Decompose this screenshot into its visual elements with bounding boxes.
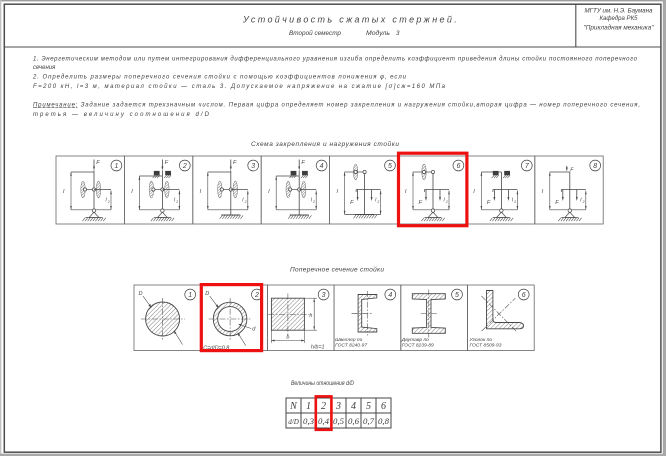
svg-text:3: 3 [251,163,255,170]
svg-text:Швеллер по: Швеллер по [335,337,363,343]
svg-text:0,7: 0,7 [363,416,375,426]
svg-text:N: N [289,401,298,412]
svg-text:2: 2 [445,200,448,204]
svg-text:ГОСТ 8240-97: ГОСТ 8240-97 [335,343,367,349]
svg-text:0,5: 0,5 [333,416,345,426]
svg-text:2. Определить размеры попер: 2. Определить размеры поперечного сечени… [32,74,407,81]
svg-text:Кафедра РК5: Кафедра РК5 [600,14,638,22]
svg-text:Модуль: Модуль [366,30,390,37]
svg-text:F: F [96,160,100,166]
svg-text:2: 2 [376,200,379,204]
svg-text:h: h [309,313,312,319]
svg-text:2: 2 [107,200,110,204]
svg-text:0,8: 0,8 [378,416,390,426]
svg-text:F: F [233,160,237,166]
svg-text:b: b [286,335,289,341]
svg-text:2: 2 [312,200,315,204]
svg-text:"Прикладная механика": "Прикладная механика" [584,24,655,32]
svg-text:Второй семестр: Второй семестр [289,30,342,37]
svg-text:F: F [301,160,305,166]
svg-text:0,3: 0,3 [303,416,315,426]
svg-text:сечения: сечения [33,65,56,71]
svg-text:2: 2 [182,163,187,170]
svg-text:F: F [165,160,169,166]
svg-text:5: 5 [455,292,459,299]
svg-text:1: 1 [188,292,192,299]
svg-text:1: 1 [114,163,118,170]
svg-text:3: 3 [396,30,400,37]
svg-text:5: 5 [388,163,392,170]
svg-text:4: 4 [351,401,356,412]
svg-text:6: 6 [522,292,526,299]
svg-text:4: 4 [320,163,324,170]
svg-text:3: 3 [335,401,341,412]
svg-text:2: 2 [582,200,585,204]
svg-text:2: 2 [175,200,178,204]
svg-text:1. Энергетическим методом и: 1. Энергетическим методом или путем инте… [33,55,638,62]
svg-text:Схема закрепления и нагруже: Схема закрепления и нагружения стойки [251,140,399,148]
svg-text:МГТУ им. Н.Э. Баумана: МГТУ им. Н.Э. Баумана [585,7,653,14]
svg-text:F: F [350,200,354,206]
svg-text:2: 2 [321,401,326,412]
svg-text:2: 2 [513,200,516,204]
svg-text:D: D [139,291,143,297]
svg-text:F: F [555,200,559,206]
svg-text:третья — величину соотношен: третья — величину соотношения d/D [33,112,210,118]
svg-text:Поперечное сечение стойки: Поперечное сечение стойки [290,266,384,274]
svg-text:D: D [205,291,209,297]
svg-text:Величины отношения d/D: Величины отношения d/D [291,380,354,387]
svg-text:0,6: 0,6 [348,416,360,426]
svg-text:F: F [487,200,491,206]
svg-text:1: 1 [306,401,311,412]
svg-text:Устойчивость сжатых стержней.: Устойчивость сжатых стержней. [242,15,459,25]
svg-text:d/D: d/D [288,418,299,426]
svg-text:Примечание: Задание задается: Примечание: Задание задается трехзначным… [33,101,640,108]
svg-text:8: 8 [593,163,597,170]
svg-text:h/b=1: h/b=1 [311,345,325,351]
svg-text:6: 6 [381,401,386,412]
svg-text:F: F [419,200,423,206]
svg-text:6: 6 [456,163,460,170]
svg-text:Уголок по: Уголок по [470,337,493,343]
svg-text:3: 3 [322,292,326,299]
svg-text:ГОСТ 8509-93: ГОСТ 8509-93 [470,343,502,349]
svg-text:F=200 кН, l=3 м, материал: F=200 кН, l=3 м, материал стойки — сталь… [33,83,446,90]
svg-text:5: 5 [366,401,371,412]
svg-text:0,4: 0,4 [318,416,330,426]
svg-text:ГОСТ 8239-89: ГОСТ 8239-89 [402,343,434,349]
svg-text:4: 4 [388,292,392,299]
svg-text:Двутавр по: Двутавр по [401,337,429,343]
svg-text:2: 2 [244,200,247,204]
svg-text:2: 2 [254,292,259,299]
